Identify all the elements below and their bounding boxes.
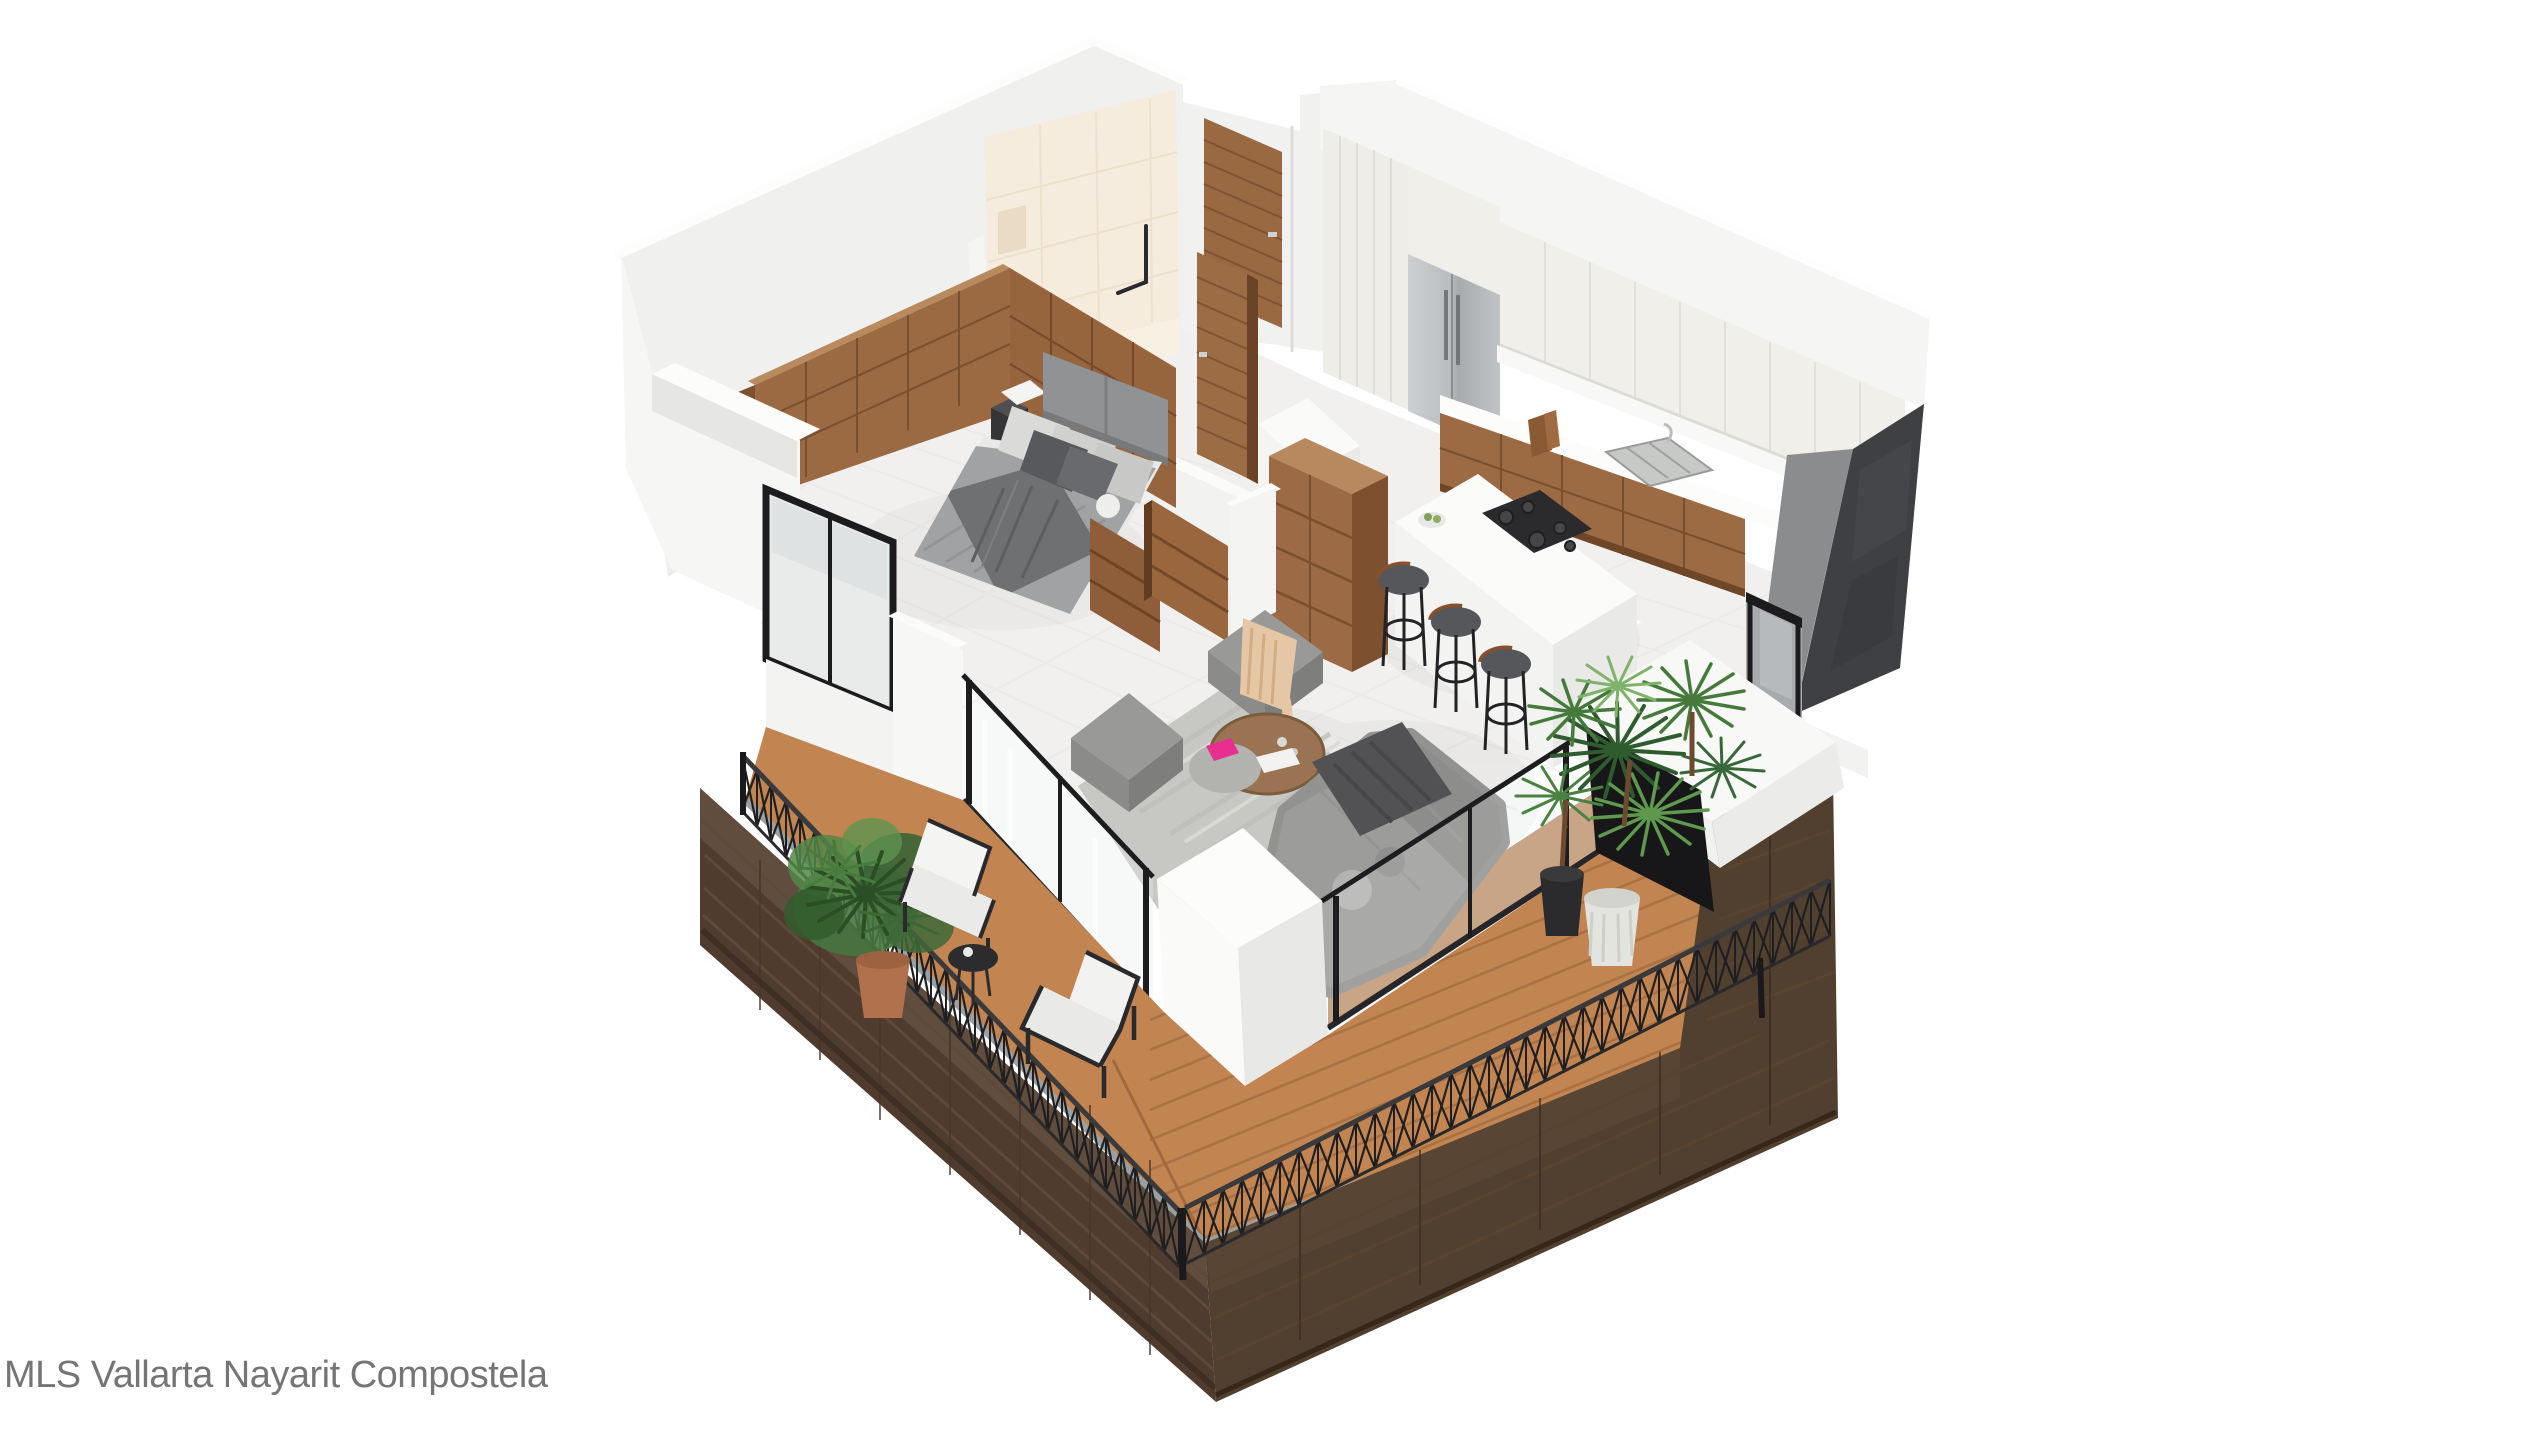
svg-text:MLS Vallarta Nayarit Compostel: MLS Vallarta Nayarit Compostela (4, 1354, 549, 1396)
